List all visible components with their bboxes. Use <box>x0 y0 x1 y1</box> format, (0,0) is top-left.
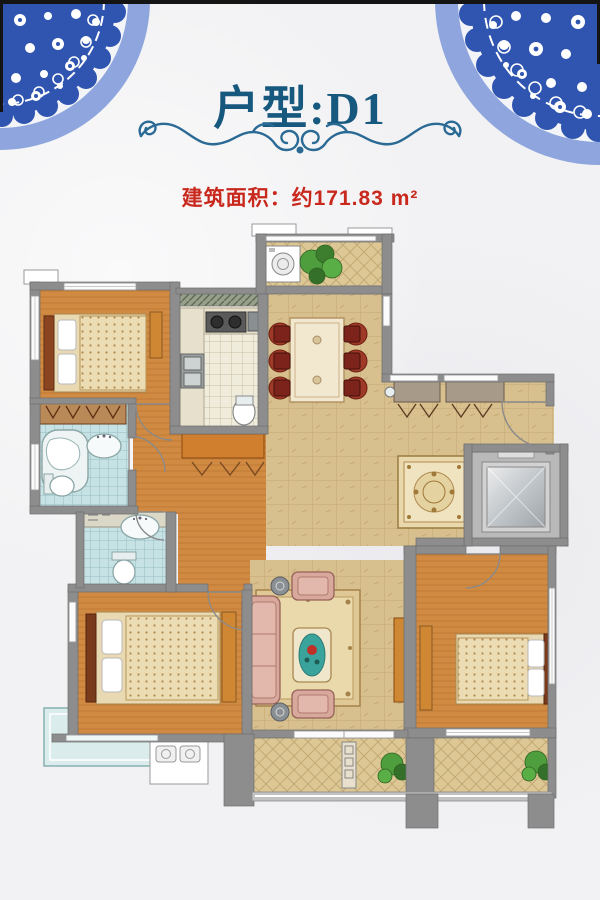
coffee-table <box>293 628 331 682</box>
master-bed <box>86 612 236 704</box>
bed-top-left <box>44 312 162 392</box>
flue-shaft <box>176 294 268 306</box>
balcony-rack <box>342 742 356 788</box>
dining-set <box>269 318 367 402</box>
balcony-railing <box>252 792 554 828</box>
foyer-rug <box>398 456 470 528</box>
washing-machine <box>266 246 300 282</box>
elevator <box>472 452 560 540</box>
floorplan-poster: 户型:D1 建筑面积：约171.83 m² <box>0 0 600 900</box>
wardrobe-ensuite <box>40 402 126 424</box>
ac-unit-bottom <box>150 738 208 784</box>
floor-plan <box>0 0 600 900</box>
